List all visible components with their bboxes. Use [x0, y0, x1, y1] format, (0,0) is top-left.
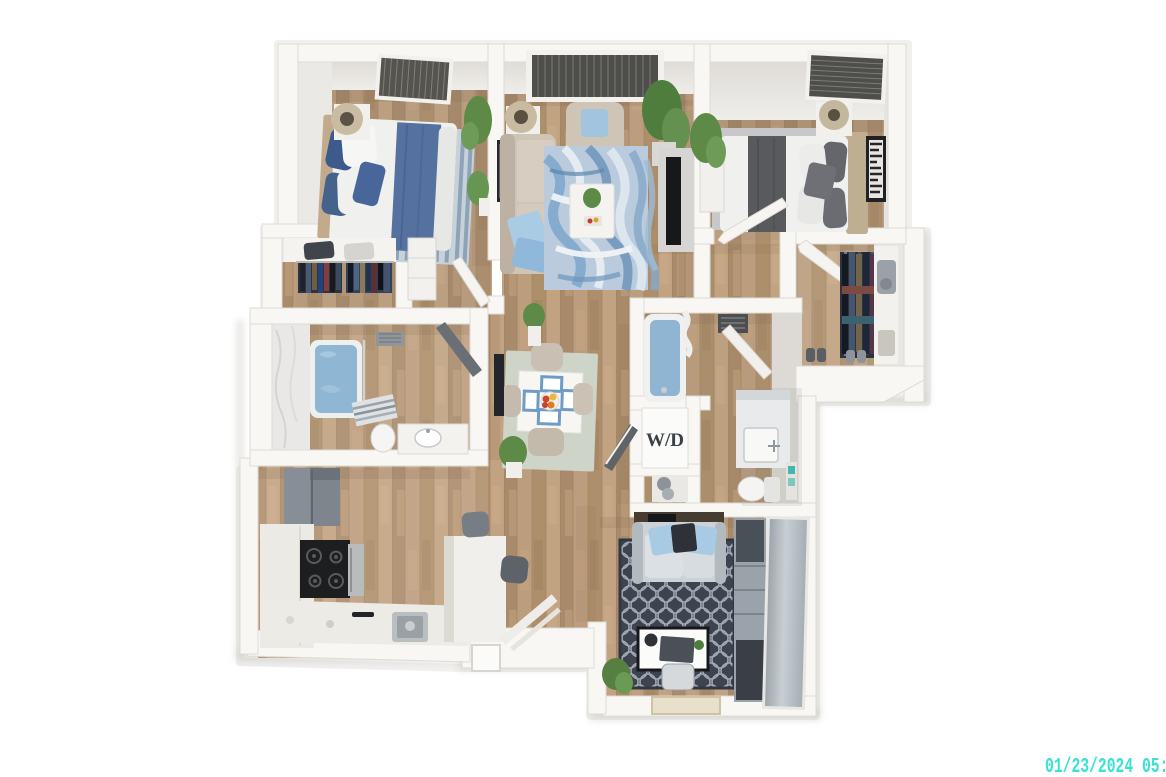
svg-text:W/D: W/D [646, 430, 684, 451]
svg-text:01/23/2024 05:3: 01/23/2024 05:3 [1045, 756, 1166, 777]
